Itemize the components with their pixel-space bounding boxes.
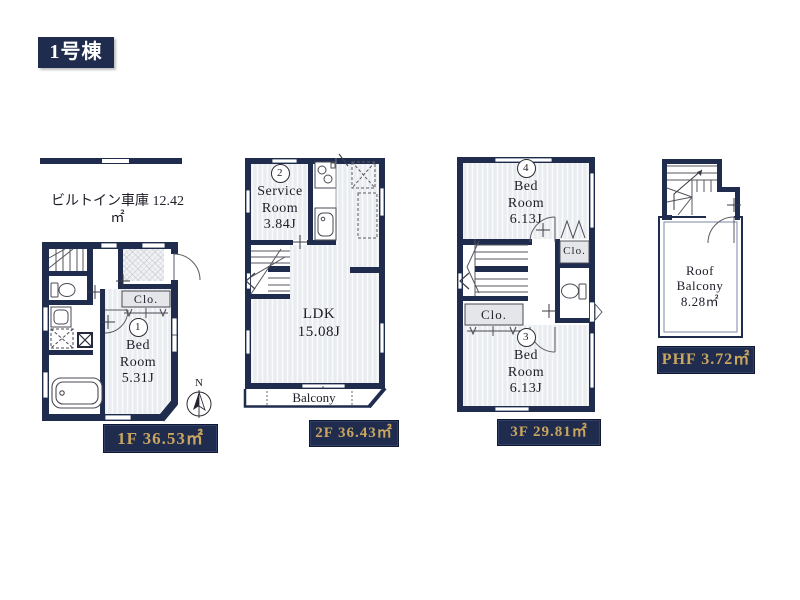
floor-plan-2f: 2 Service Room 3.84J LDK 15.08J Balcony …: [235, 145, 405, 455]
compass-icon: [187, 390, 211, 418]
floor-plan-3f: 4 Bed Room 6.13J Clo. Clo. 3 Bed Room 6.…: [445, 145, 615, 455]
side-door-marker: [595, 304, 602, 320]
kitchen-sink-icon: [315, 208, 336, 240]
closet-right-label: Clo.: [560, 245, 589, 258]
compass-north-label: N: [191, 377, 207, 390]
floor-drain-icon: [78, 333, 92, 347]
floor-plan-1f: ビルトイン車庫 12.42㎡ Clo. 1 Bed Room 5.31J N 1…: [25, 150, 235, 460]
closet-left-label: Clo.: [465, 307, 523, 322]
toilet-icon-3f: [562, 284, 587, 299]
stair-enclosure-walls: [662, 159, 740, 220]
kitchen-stove-icon: [315, 162, 336, 188]
bedroom4-label: 4 Bed Room 6.13J: [495, 159, 557, 229]
washer-space-icon: [51, 329, 73, 348]
washbasin-icon: [51, 307, 71, 327]
stairs-1f: [49, 249, 83, 271]
floorplan-sheet: { "colors": { "navy": "#1f2c4d", "gold":…: [0, 0, 800, 600]
balcony-label: Balcony: [283, 390, 345, 405]
building-number-badge: 1号棟: [38, 37, 114, 68]
garage-shutter-bar: [40, 158, 182, 164]
roof-balcony-label: Roof Balcony 8.28㎡: [664, 263, 736, 309]
closet-1f-label: Clo.: [122, 292, 170, 306]
floor-phf-area-tag: PHF 3.72㎡: [657, 346, 755, 374]
floor-plan-phf: Roof Balcony 8.28㎡ PHF 3.72㎡: [650, 150, 760, 380]
toilet-icon-1f: [51, 283, 75, 297]
floor-2f-area-tag: 2F 36.43㎡: [309, 420, 399, 447]
entrance-tile-floor: [123, 249, 164, 281]
floor-1f-area-tag: 1F 36.53㎡: [103, 424, 218, 453]
floor-3f-area-tag: 3F 29.81㎡: [497, 419, 601, 446]
service-room-label: 2 Service Room 3.84J: [245, 164, 315, 234]
stairs-phf: [667, 166, 717, 215]
bathtub-icon: [52, 378, 102, 408]
stairs-3f-landing-edge: [475, 266, 528, 272]
bedroom1-label: 1 Bed Room 5.31J: [109, 318, 167, 388]
bedroom3-label: 3 Bed Room 6.13J: [495, 328, 557, 398]
ldk-label: LDK 15.08J: [288, 306, 350, 341]
garage-label: ビルトイン車庫 12.42㎡: [45, 194, 190, 227]
